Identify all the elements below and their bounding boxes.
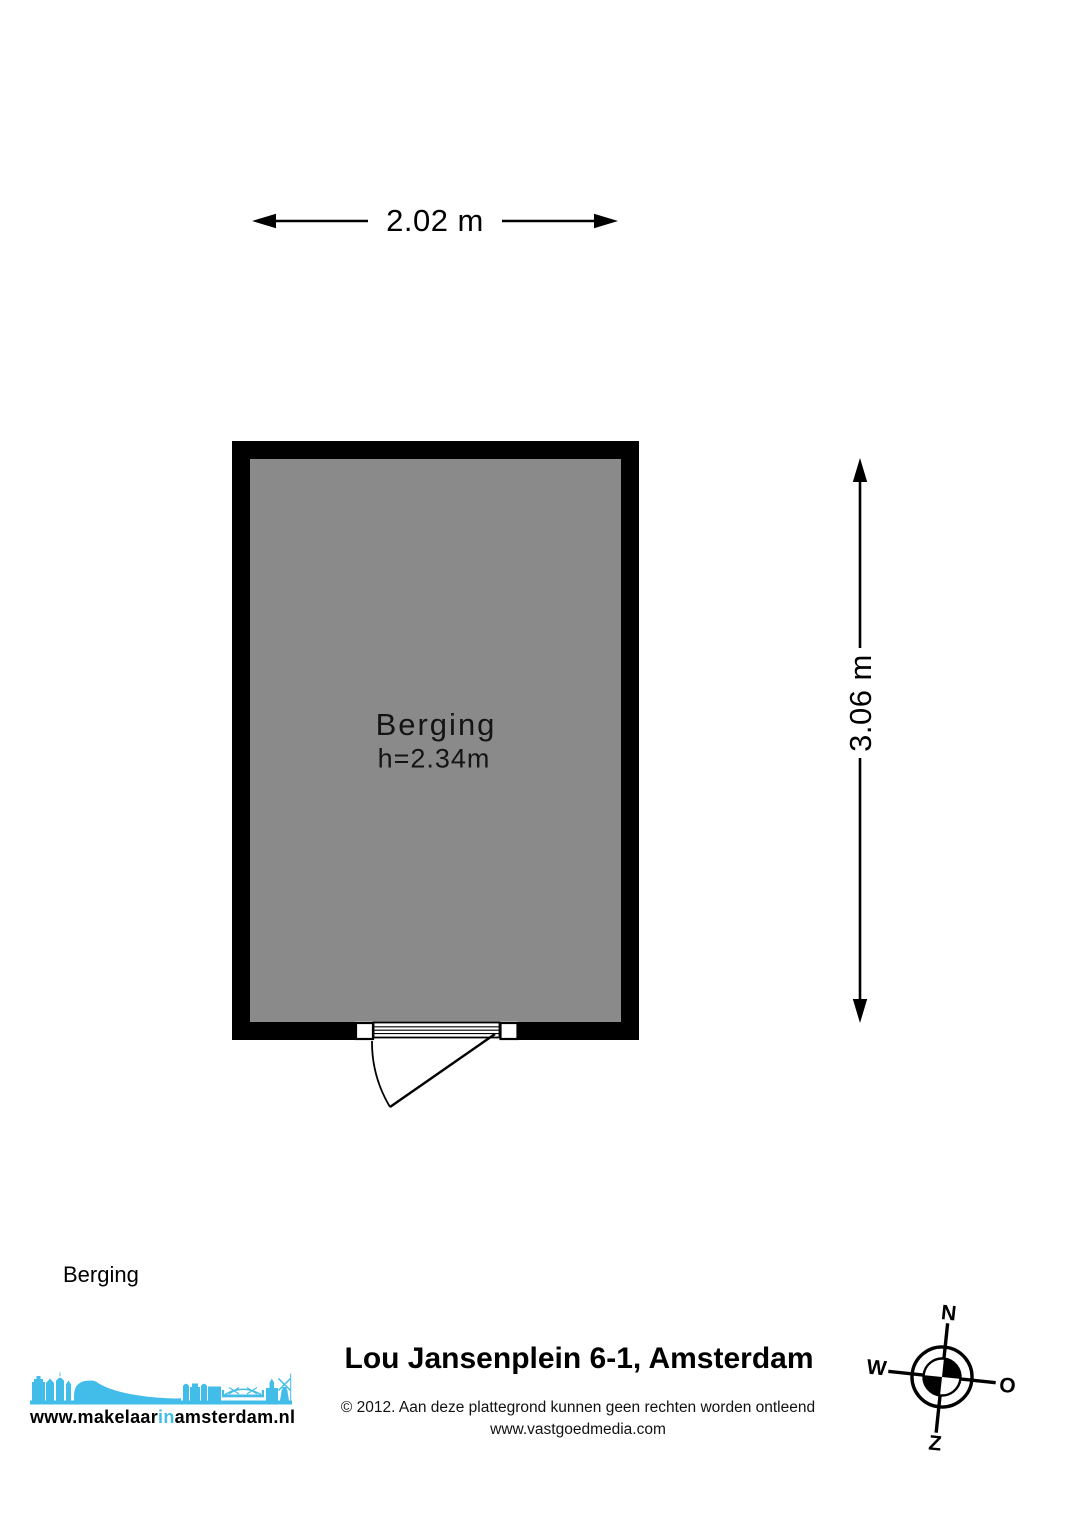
room-name-label: Berging [376,707,497,743]
floorplan-page: N O Z W 2.02 m 3.06 m Berging h=2.34m Be… [0,0,1086,1536]
vastgoedmedia-website: www.vastgoedmedia.com [490,1421,666,1439]
height-dimension-label: 3.06 m [843,654,879,752]
door-swing-arc [372,1041,390,1107]
compass-label-south: Z [927,1432,942,1456]
door-jamb-right [501,1023,518,1039]
makelaar-logo: www.makelaarinamsterdam.nl [30,1372,292,1428]
door-jamb-left [356,1023,373,1039]
compass-rose: N O Z W [858,1294,1023,1463]
room-ceiling-height-label: h=2.34m [378,744,491,775]
logo-text-prefix: www.makelaar [30,1407,158,1427]
logo-text-highlight: in [158,1407,175,1427]
floorplan-drawing: N O Z W [0,0,1086,1536]
address-title: Lou Jansenplein 6-1, Amsterdam [344,1342,813,1376]
floor-name-label: Berging [63,1262,139,1288]
copyright-disclaimer: © 2012. Aan deze plattegrond kunnen geen… [341,1399,815,1417]
width-dimension-label: 2.02 m [386,203,484,239]
compass-label-east: O [998,1374,1017,1399]
compass-label-north: N [940,1301,957,1325]
door [355,1022,518,1108]
logo-text-suffix: amsterdam.nl [175,1407,296,1427]
door-leaf-strip [374,1023,500,1038]
door-leaf-line [390,1034,495,1107]
makelaar-logo-text: www.makelaarinamsterdam.nl [30,1407,292,1428]
compass-label-west: W [866,1356,888,1381]
amsterdam-skyline-icon [30,1372,292,1406]
